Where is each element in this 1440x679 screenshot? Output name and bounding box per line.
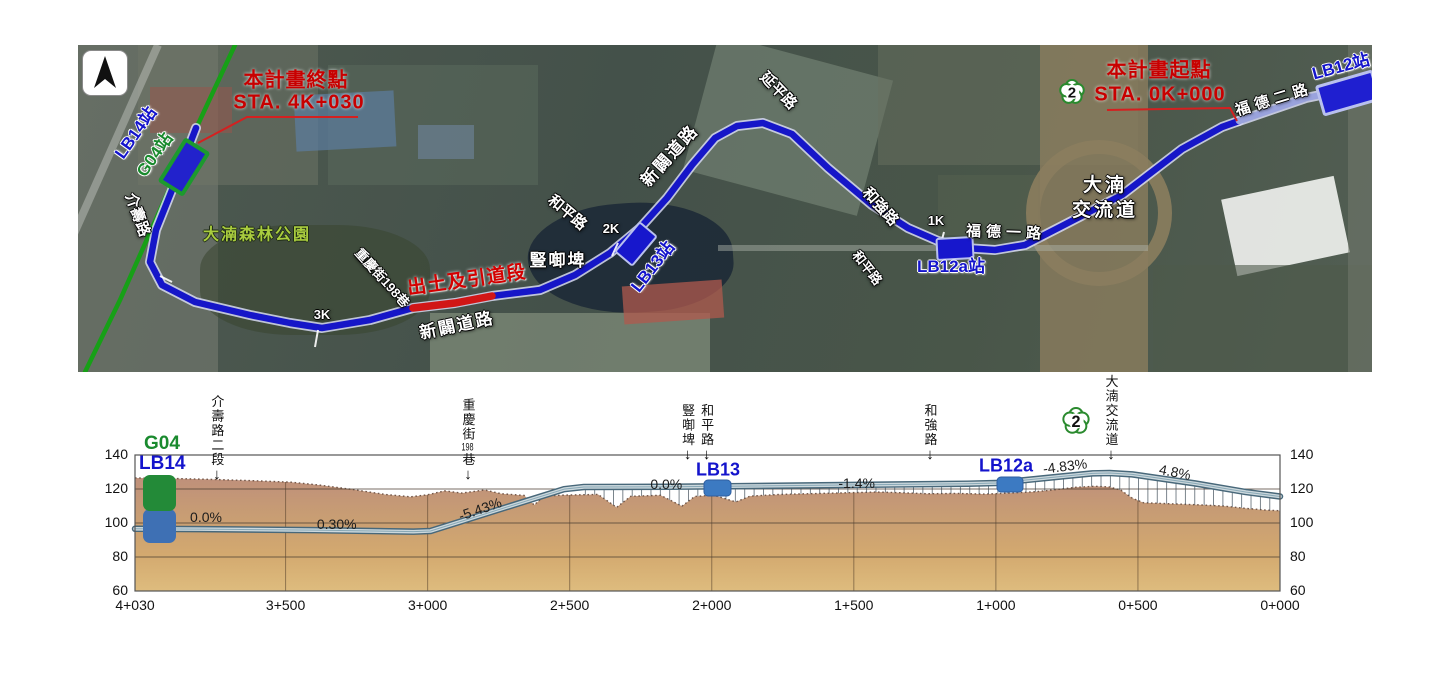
crossing-arrow-3: ↓ <box>703 446 711 463</box>
crossing-label-4: 和強路 <box>923 404 936 448</box>
svg-text:2: 2 <box>1071 413 1080 431</box>
y-axis-tick-left-80: 80 <box>96 548 128 564</box>
grade-label-3: 0.0% <box>650 476 682 492</box>
crossing-arrow-0: ↓ <box>213 466 221 483</box>
x-axis-tick-0+500: 0+500 <box>1118 597 1157 613</box>
station-label-lb12a: LB12a <box>979 456 1033 477</box>
y-axis-tick-right-80: 80 <box>1290 548 1306 564</box>
crossing-arrow-1: ↓ <box>464 466 472 483</box>
y-axis-tick-right-140: 140 <box>1290 446 1313 462</box>
y-axis-tick-right-60: 60 <box>1290 582 1306 598</box>
x-axis-tick-0+000: 0+000 <box>1260 597 1299 613</box>
x-axis-tick-3+500: 3+500 <box>266 597 305 613</box>
y-axis-tick-left-60: 60 <box>96 582 128 598</box>
crossing-arrow-5: ↓ <box>1107 446 1115 463</box>
y-axis-tick-left-140: 140 <box>96 446 128 462</box>
elevation-profile-chart <box>0 0 1440 679</box>
grade-label-1: 0.30% <box>317 516 357 532</box>
provincial-highway-2-shield-profile: 2 <box>1062 407 1090 440</box>
x-axis-tick-2+000: 2+000 <box>692 597 731 613</box>
grade-label-4: -1.4% <box>838 475 875 491</box>
y-axis-tick-left-120: 120 <box>96 480 128 496</box>
x-axis-tick-3+000: 3+000 <box>408 597 447 613</box>
y-axis-tick-right-100: 100 <box>1290 514 1313 530</box>
crossing-label-2: 豎啣埤 <box>681 404 694 448</box>
y-axis-tick-right-120: 120 <box>1290 480 1313 496</box>
crossing-arrow-4: ↓ <box>926 446 934 463</box>
station-label-g04: G04 <box>144 433 180 455</box>
x-axis-tick-2+500: 2+500 <box>550 597 589 613</box>
station-label-lb14: LB14 <box>139 453 185 475</box>
crossing-label-3: 和平路 <box>700 404 713 448</box>
x-axis-tick-1+000: 1+000 <box>976 597 1015 613</box>
crossing-label-1: 重慶街198巷 <box>461 398 474 467</box>
x-axis-tick-1+500: 1+500 <box>834 597 873 613</box>
crossing-label-0: 介壽路二段 <box>210 395 223 468</box>
page: LB14站G04站介壽路大湳森林公園重慶街198巷出土及引道段新闢道路豎啣埤和平… <box>0 0 1440 679</box>
grade-label-0: 0.0% <box>190 509 222 525</box>
crossing-arrow-2: ↓ <box>684 446 692 463</box>
y-axis-tick-left-100: 100 <box>96 514 128 530</box>
crossing-label-5: 大湳交流道 <box>1104 375 1117 448</box>
x-axis-tick-4+030: 4+030 <box>115 597 154 613</box>
